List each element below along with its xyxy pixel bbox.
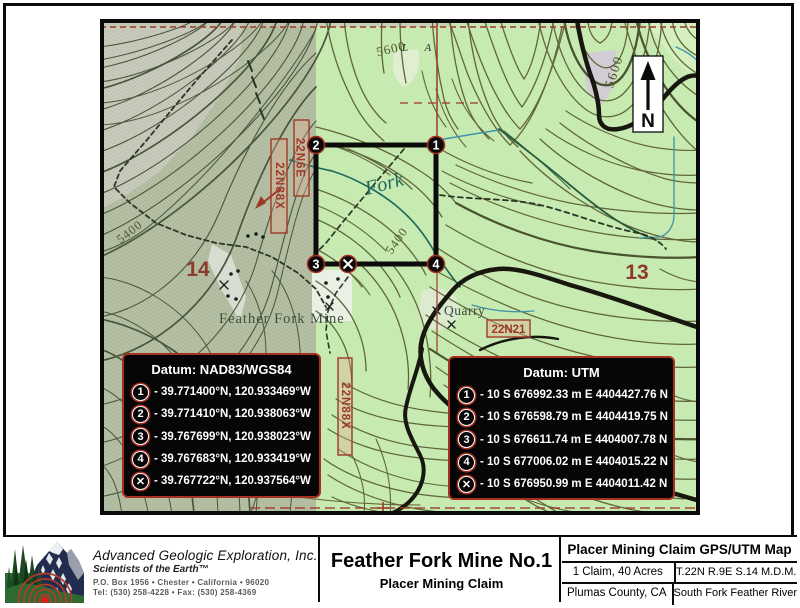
svg-text:2: 2 — [313, 139, 320, 153]
svg-text:3: 3 — [313, 258, 320, 272]
svg-text:Quarry: Quarry — [444, 303, 485, 318]
svg-text:1: 1 — [433, 139, 440, 153]
svg-text:14: 14 — [186, 258, 210, 281]
svg-text:4: 4 — [433, 258, 440, 272]
svg-text:22N21: 22N21 — [492, 324, 526, 336]
svg-text:13: 13 — [625, 261, 648, 284]
svg-text:22N88X: 22N88X — [273, 162, 285, 210]
svg-text:22N6E: 22N6E — [294, 138, 306, 178]
svg-text:L A: L A — [401, 42, 438, 54]
svg-text:N: N — [641, 111, 655, 132]
svg-text:Feather Fork Mine: Feather Fork Mine — [219, 311, 345, 327]
svg-text:22N88X: 22N88X — [339, 382, 351, 430]
